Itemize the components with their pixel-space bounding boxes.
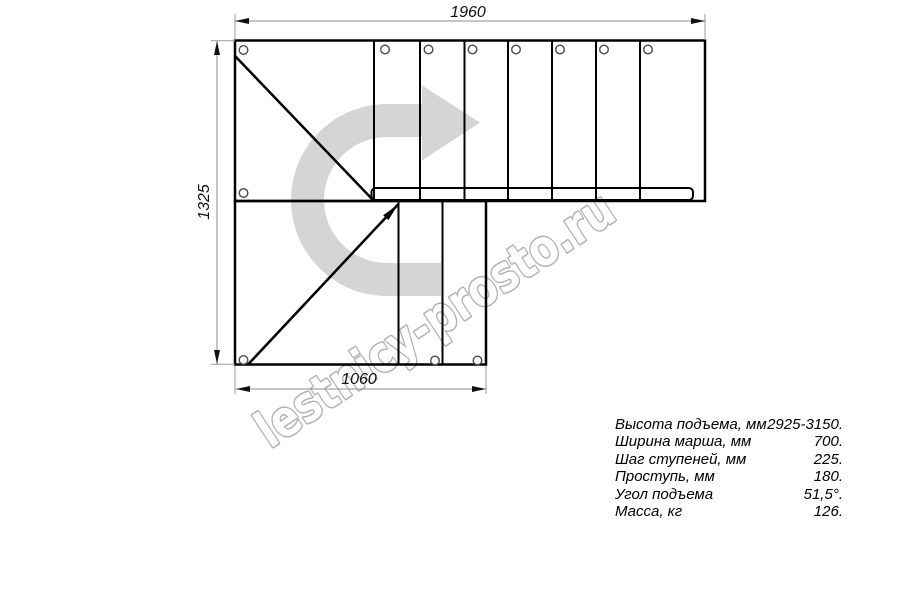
spec-table: Высота подъема, мм 2925-3150. Ширина мар… — [615, 416, 843, 520]
spec-value: 2925-3150. — [767, 416, 843, 433]
spec-row-step-pitch: Шаг ступеней, мм 225. — [615, 451, 843, 468]
spec-label: Ширина марша, мм — [615, 433, 751, 450]
spec-row-mass: Масса, кг 126. — [615, 503, 843, 520]
spec-value: 700. — [814, 433, 843, 450]
dim-arrow-right-icon — [472, 386, 486, 392]
spec-label: Шаг ступеней, мм — [615, 451, 746, 468]
spec-label: Высота подъема, мм — [615, 416, 767, 433]
spec-row-flight-width: Ширина марша, мм 700. — [615, 433, 843, 450]
spec-row-angle: Угол подъема 51,5°. — [615, 486, 843, 503]
dim-left-value: 1325 — [196, 184, 213, 220]
dim-top-value: 1960 — [450, 4, 486, 21]
staircase-plan-drawing: lestnicy-prosto.ru — [0, 0, 900, 600]
spec-row-height: Высота подъема, мм 2925-3150. — [615, 416, 843, 433]
spec-row-tread: Проступь, мм 180. — [615, 468, 843, 485]
dim-arrow-left-icon — [236, 386, 250, 392]
dim-arrow-right-icon — [691, 18, 705, 24]
spec-value: 180. — [814, 468, 843, 485]
dimension-1960: 1960 — [235, 4, 705, 40]
spec-value: 126. — [814, 503, 843, 520]
dimension-1325: 1325 — [196, 41, 235, 365]
dim-arrow-left-icon — [235, 18, 249, 24]
spec-value: 225. — [814, 451, 843, 468]
dim-arrow-up-icon — [214, 41, 220, 55]
dim-bottom-value: 1060 — [341, 371, 377, 388]
spec-label: Масса, кг — [615, 503, 682, 520]
spec-label: Угол подъема — [615, 486, 713, 503]
dim-arrow-down-icon — [214, 350, 220, 364]
spec-label: Проступь, мм — [615, 468, 715, 485]
turn-right-arrow-watermark — [291, 86, 480, 297]
spec-value: 51,5°. — [804, 486, 843, 503]
